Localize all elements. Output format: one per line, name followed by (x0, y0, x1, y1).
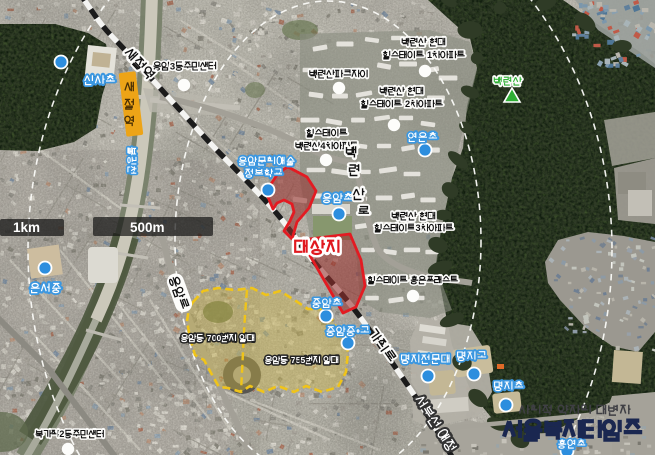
svg-text:3: 3 (416, 223, 421, 233)
svg-text:1: 1 (427, 50, 432, 60)
svg-text:2: 2 (59, 429, 64, 439)
svg-text:5: 5 (301, 355, 306, 365)
svg-text:0: 0 (217, 333, 222, 343)
svg-text:3: 3 (170, 61, 175, 72)
svg-text:2: 2 (405, 99, 410, 109)
svg-text:4: 4 (320, 141, 326, 151)
svg-text:1km: 1km (13, 220, 40, 235)
svg-text:500m: 500m (130, 220, 165, 235)
